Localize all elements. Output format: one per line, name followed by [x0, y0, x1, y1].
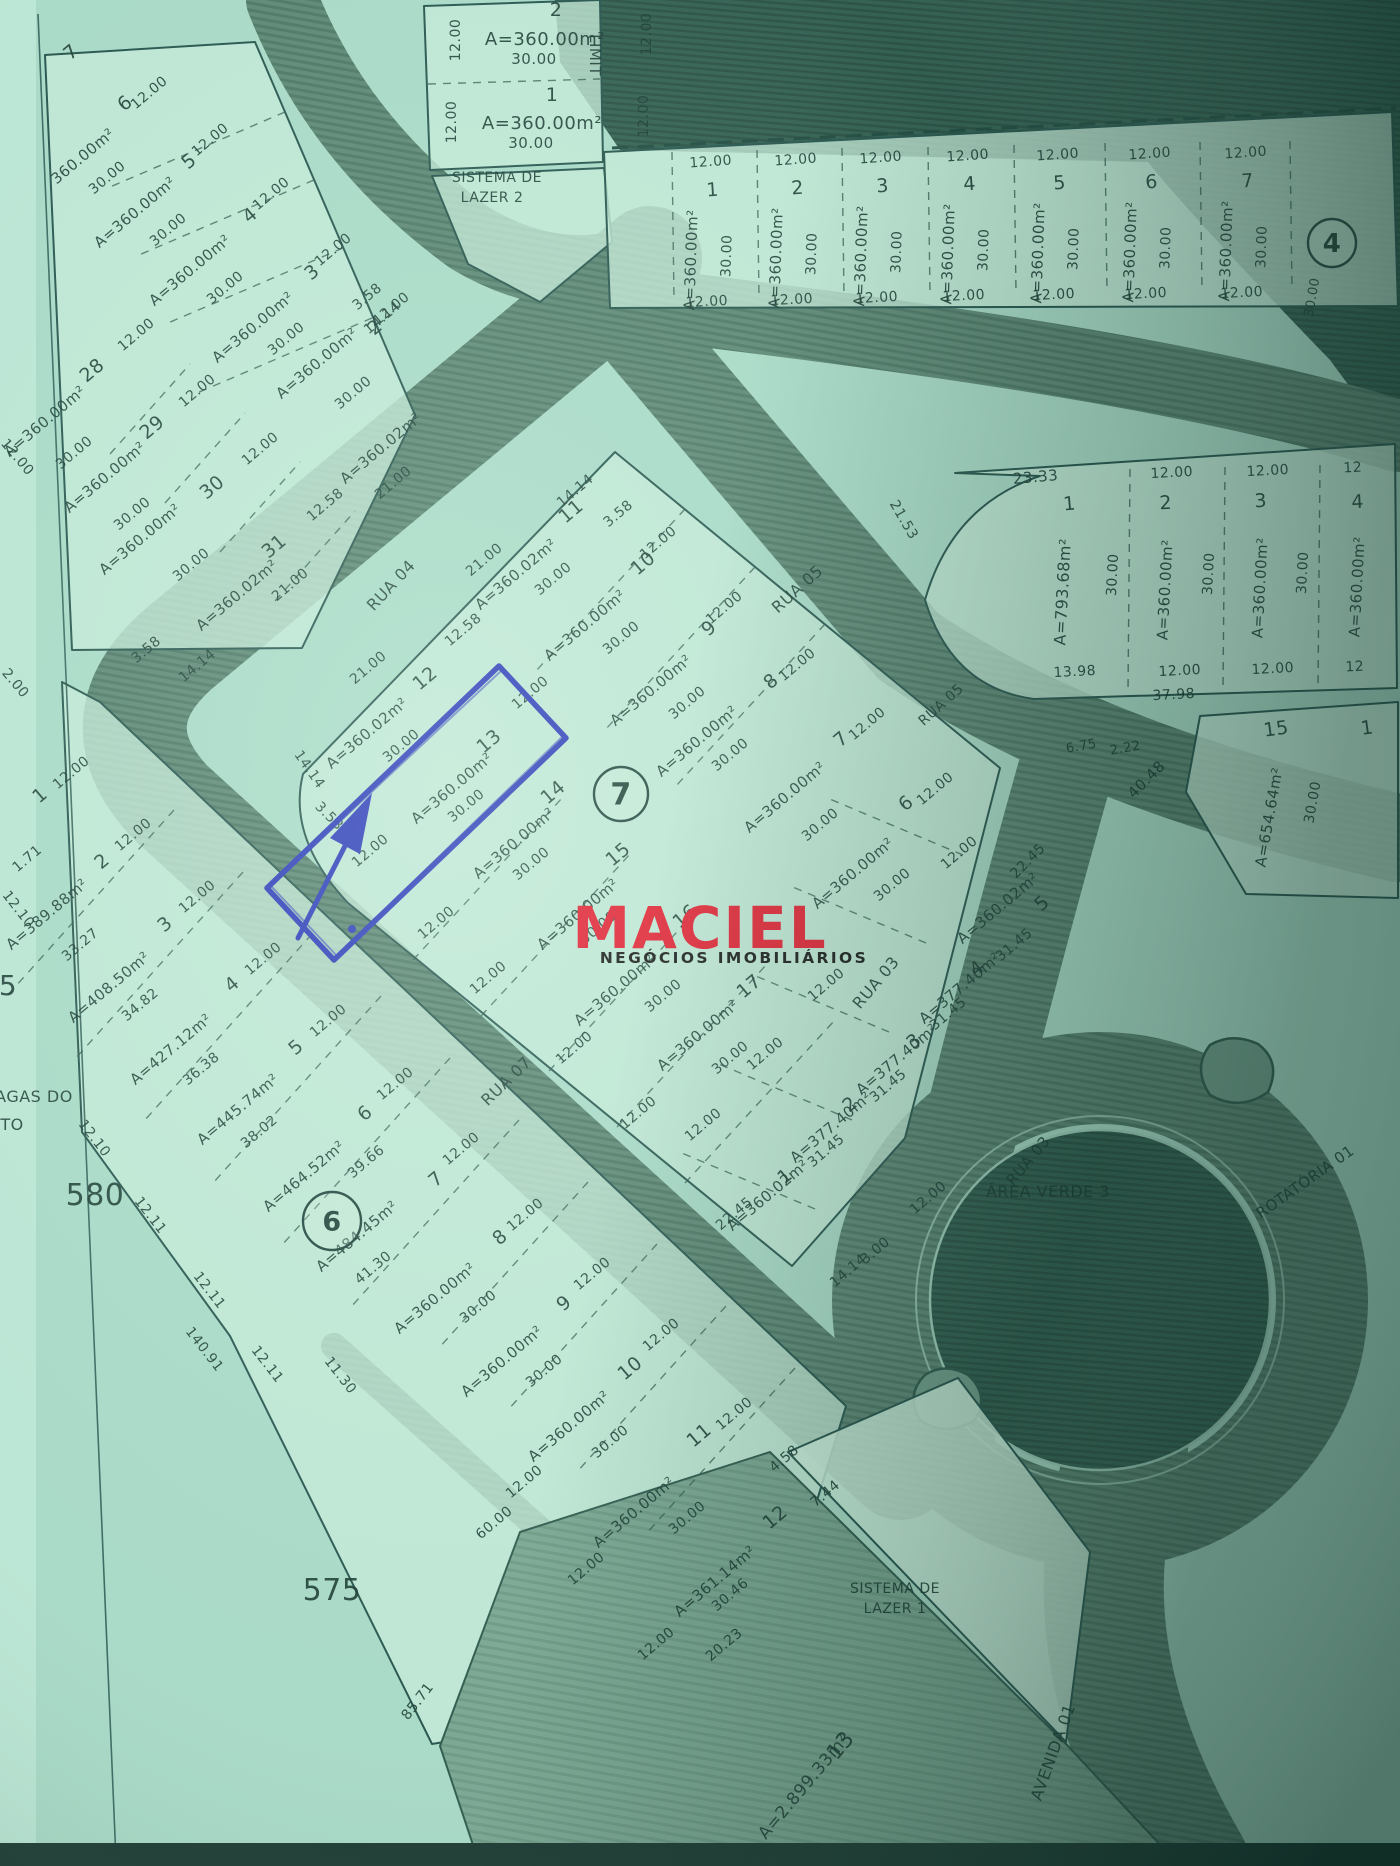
- plat-map-canvas: 712.006360.00m²30.0012.005A=360.00m²30.0…: [0, 0, 1400, 1866]
- photo-vignette-overlay: [0, 0, 1400, 1866]
- scanned-plat-map-photo: 712.006360.00m²30.0012.005A=360.00m²30.0…: [0, 0, 1400, 1866]
